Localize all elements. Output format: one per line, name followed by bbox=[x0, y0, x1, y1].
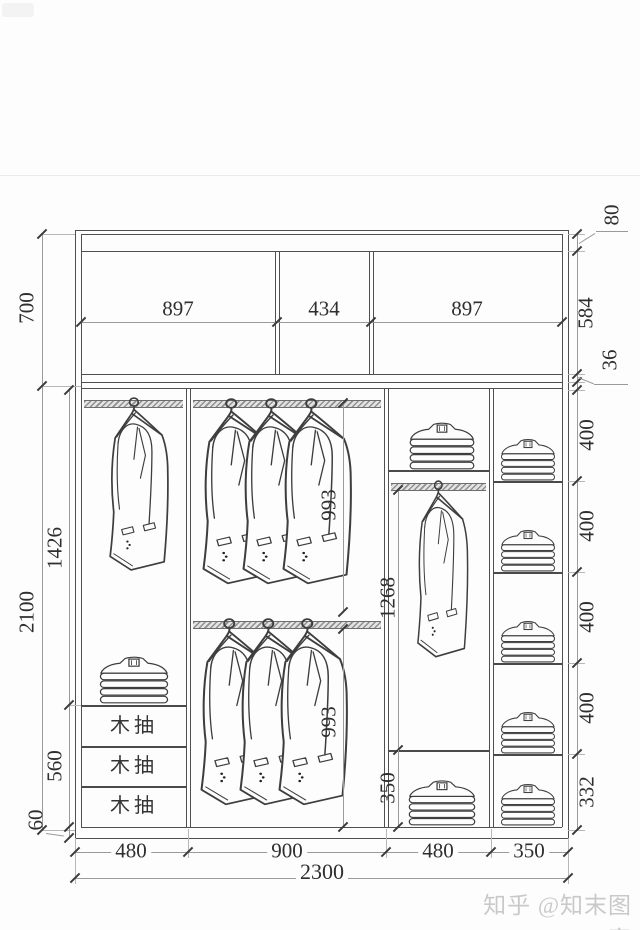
outer-left-line bbox=[75, 230, 76, 839]
dim-line bbox=[343, 629, 344, 827]
shelf-line bbox=[493, 663, 562, 665]
dim-line bbox=[69, 388, 70, 838]
leader-line bbox=[594, 384, 628, 385]
hanging-coat-icon bbox=[108, 396, 180, 578]
interior-bottom-line bbox=[81, 827, 562, 828]
dim-897: 897 bbox=[162, 299, 194, 320]
drawer-line bbox=[81, 746, 186, 748]
folded-clothes-icon bbox=[405, 776, 479, 826]
ext-line bbox=[42, 386, 81, 387]
dim-60: 60 bbox=[26, 810, 47, 831]
dim-1426: 1426 bbox=[45, 527, 66, 569]
dim-1268: 1268 bbox=[378, 577, 399, 619]
outer-top-line bbox=[75, 230, 568, 231]
dim-993: 993 bbox=[319, 706, 340, 738]
ext-line bbox=[42, 234, 75, 235]
dim-400: 400 bbox=[577, 510, 598, 542]
drawer-line bbox=[81, 705, 186, 707]
folded-clothes-icon bbox=[498, 708, 558, 754]
drawer-line bbox=[81, 786, 186, 788]
dim-480: 480 bbox=[111, 841, 151, 862]
main-divider-line bbox=[489, 388, 490, 827]
folded-clothes-icon bbox=[498, 526, 558, 572]
ext-line bbox=[188, 829, 189, 858]
folded-clothes-icon bbox=[498, 617, 558, 663]
main-divider-line bbox=[190, 388, 191, 827]
shelf-line bbox=[493, 572, 562, 574]
main-divider-line bbox=[186, 388, 187, 827]
dim-400: 400 bbox=[577, 692, 598, 724]
ext-line bbox=[491, 829, 492, 858]
corner-smudge bbox=[2, 3, 34, 17]
dim-350: 350 bbox=[378, 772, 399, 804]
ext-line bbox=[69, 705, 81, 706]
outer-bottom-line bbox=[75, 838, 568, 839]
dim-80: 80 bbox=[602, 205, 623, 226]
dim-2300: 2300 bbox=[296, 861, 348, 883]
top-ceiling-line bbox=[81, 251, 562, 252]
top-divider-line bbox=[369, 251, 370, 374]
shelf-line bbox=[388, 750, 489, 752]
dim-36: 36 bbox=[600, 350, 621, 371]
main-divider-line bbox=[493, 388, 494, 827]
drawer-label: 木抽 bbox=[110, 756, 158, 776]
top-compartment-bottom-line bbox=[81, 374, 562, 375]
dim-400: 400 bbox=[577, 419, 598, 451]
hanging-coat-icon bbox=[416, 479, 478, 665]
wardrobe-elevation-drawing: 木抽 木抽 木抽 897 434 897 700 2100 1426 560 6… bbox=[0, 0, 640, 930]
leader-line bbox=[578, 377, 594, 384]
dim-993: 993 bbox=[319, 489, 340, 521]
folded-clothes-icon bbox=[498, 435, 558, 481]
leader-line bbox=[46, 833, 64, 836]
drawer-label: 木抽 bbox=[110, 716, 158, 736]
top-divider-line bbox=[275, 251, 276, 374]
dim-line bbox=[398, 490, 399, 750]
dim-560: 560 bbox=[45, 750, 66, 782]
inner-top-line bbox=[81, 234, 562, 235]
main-top-outer-line bbox=[81, 382, 562, 383]
dim-350: 350 bbox=[509, 841, 549, 862]
dim-897: 897 bbox=[451, 299, 483, 320]
dim-400: 400 bbox=[577, 601, 598, 633]
drawer-label: 木抽 bbox=[110, 796, 158, 816]
shelf-line bbox=[493, 754, 562, 756]
shelf-line bbox=[388, 470, 489, 472]
page-divider-line bbox=[0, 175, 640, 176]
folded-clothes-icon bbox=[498, 780, 558, 826]
dim-700: 700 bbox=[17, 292, 38, 324]
ext-line bbox=[386, 829, 387, 858]
top-divider-line bbox=[279, 251, 280, 374]
dim-480: 480 bbox=[418, 841, 458, 862]
outer-right-line bbox=[568, 230, 569, 839]
dim-line bbox=[343, 403, 344, 612]
dim-584: 584 bbox=[576, 297, 597, 329]
folded-clothes-icon bbox=[406, 418, 478, 470]
dim-line bbox=[81, 322, 562, 323]
dim-434: 434 bbox=[308, 299, 340, 320]
dim-332: 332 bbox=[577, 776, 598, 808]
shelf-line bbox=[493, 481, 562, 483]
top-divider-line bbox=[373, 251, 374, 374]
leader-line bbox=[596, 231, 628, 232]
dim-2100: 2100 bbox=[17, 591, 38, 633]
watermark: 知乎 @知末图窗 bbox=[468, 886, 632, 930]
folded-clothes-icon bbox=[96, 652, 172, 704]
